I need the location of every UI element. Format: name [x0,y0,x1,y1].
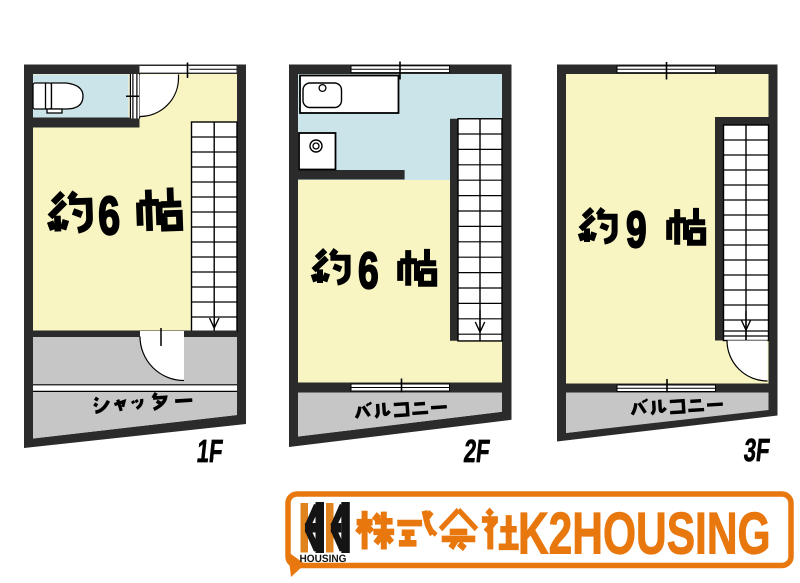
svg-text:K2HOUSING: K2HOUSING [518,501,771,567]
svg-text:HOUSING: HOUSING [300,553,347,565]
svg-text:6: 6 [358,242,378,299]
svg-text:6: 6 [97,186,121,247]
svg-text:2F: 2F [462,433,491,469]
svg-text:3F: 3F [742,432,771,468]
svg-text:9: 9 [626,201,646,258]
svg-text:1F: 1F [195,433,224,469]
